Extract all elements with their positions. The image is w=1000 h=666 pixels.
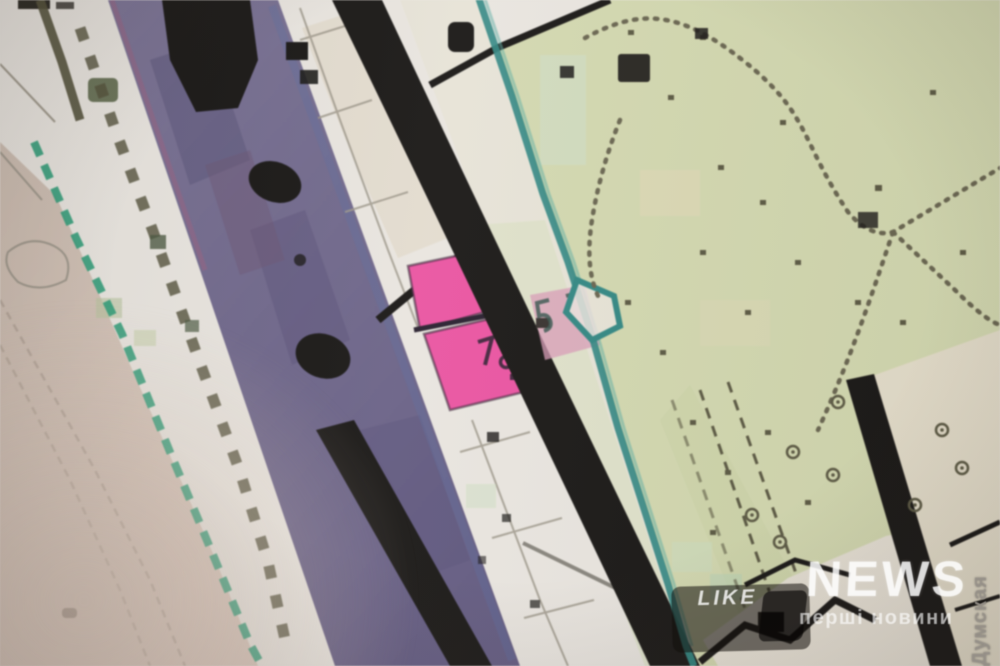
cadastral-map [0,0,1000,666]
map-photo: LIKE NEWS перші новини Думская [0,0,1000,666]
